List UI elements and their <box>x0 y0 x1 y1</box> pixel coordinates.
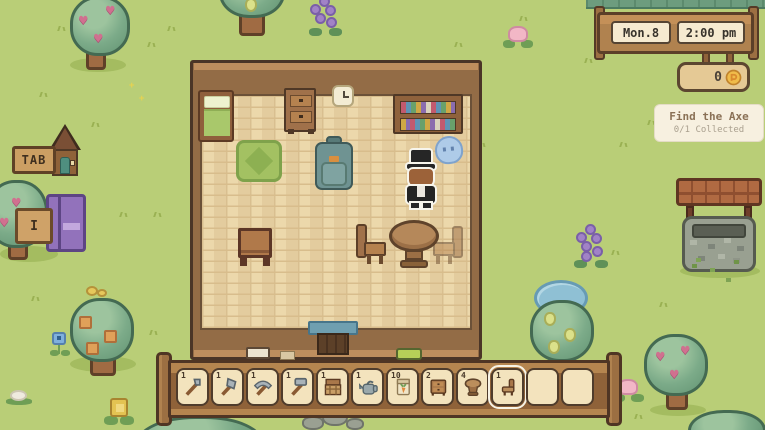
rug <box>236 140 282 182</box>
hotbar-slot-9-table[interactable]: 4 <box>456 368 489 406</box>
grass-tuft <box>585 58 593 64</box>
inventory-crate: I <box>15 208 53 244</box>
item-count: 1 <box>286 371 291 380</box>
item-count: 1 <box>251 371 256 380</box>
sparkle: + <box>129 82 134 91</box>
house-roof-edge <box>194 63 478 70</box>
grass-tuft <box>520 16 528 22</box>
coin-panel: 0 <box>677 62 750 92</box>
pillow <box>204 96 230 108</box>
heart-fruit <box>79 14 87 28</box>
white-flower <box>6 390 32 406</box>
hotbar-slot-2-axe[interactable]: 1 <box>211 368 244 406</box>
item-count: 10 <box>391 371 401 380</box>
item-count: 1 <box>496 371 501 380</box>
player-character <box>401 148 439 210</box>
grass-tuft <box>58 26 66 32</box>
heart-tree <box>644 334 708 396</box>
quest-title: Find the Axe <box>655 110 763 123</box>
blue-flower <box>50 332 70 358</box>
hotbar-slot-1-hoe[interactable]: 1 <box>176 368 209 406</box>
hotbar-slot-3-pickaxe[interactable]: 1 <box>246 368 279 406</box>
door <box>317 333 349 355</box>
date-label: Mon.8 <box>623 26 659 40</box>
orange-tree <box>70 298 134 362</box>
item-count: 1 <box>321 371 326 380</box>
yellow-flower <box>97 289 107 297</box>
coin-amount: 0 <box>714 70 722 85</box>
hotbar-slot-12-empty[interactable] <box>561 368 594 406</box>
grass-tuft <box>612 250 620 256</box>
grass-tuft <box>92 122 100 128</box>
hotbar-slots: 11111110241 <box>176 368 604 408</box>
hotbar-slot-8-dresser[interactable]: 2 <box>421 368 454 406</box>
time-label: 2:00 pm <box>686 26 737 40</box>
round-table <box>389 218 439 268</box>
fruit <box>104 330 117 343</box>
fruit <box>544 312 556 326</box>
grass-tuft <box>148 42 156 48</box>
dresser <box>284 88 316 132</box>
head <box>409 169 433 186</box>
item-count: 4 <box>461 371 466 380</box>
backpack <box>315 136 353 192</box>
blanket <box>204 109 230 136</box>
yellow-box-flower <box>104 398 134 428</box>
heart-fruit <box>0 216 8 230</box>
rock <box>302 416 324 430</box>
grass-tuft <box>455 42 463 48</box>
foot <box>411 203 419 208</box>
rock <box>346 418 364 430</box>
foot <box>423 203 431 208</box>
hedge <box>586 0 765 9</box>
hotbar-slot-10-chair[interactable]: 1 <box>491 368 524 406</box>
hotbar-slot-5-crate[interactable]: 1 <box>316 368 349 406</box>
chair-placement-preview <box>433 226 463 264</box>
chair <box>356 224 386 264</box>
tab-sign: TAB <box>12 146 56 174</box>
hotbar-slot-6-watering-can[interactable]: 1 <box>351 368 384 406</box>
pink-flower <box>503 24 533 52</box>
bed <box>198 90 234 142</box>
item-count: 1 <box>356 371 361 380</box>
top-hat <box>411 150 431 165</box>
inventory-key-label: I <box>30 219 38 234</box>
grape-bush <box>574 224 610 270</box>
grass-tuft <box>635 414 643 420</box>
heart-fruit <box>106 4 114 18</box>
date-panel: Mon.8 <box>611 21 671 44</box>
game-viewport: + + TAB <box>0 0 765 430</box>
fruit <box>548 340 560 354</box>
hotbar-slot-11-empty[interactable] <box>526 368 559 406</box>
grass-tuft <box>660 302 668 308</box>
heart-fruit <box>94 32 102 46</box>
fruit <box>86 342 99 355</box>
quest-progress: 0/1 Collected <box>655 125 763 135</box>
hotbar-slot-7-seed-packet[interactable]: 10 <box>386 368 419 406</box>
grass-tuft <box>40 92 48 98</box>
grass-tuft <box>32 296 40 302</box>
hotbar-slot-4-hammer[interactable]: 1 <box>281 368 314 406</box>
bookshelf <box>393 94 463 134</box>
coin-icon <box>725 69 742 86</box>
planter <box>396 348 422 360</box>
heart-fruit <box>681 344 689 358</box>
item-count: 1 <box>216 371 221 380</box>
wall-clock <box>332 85 354 107</box>
grass-tuft <box>154 212 162 218</box>
wall-box <box>280 351 295 360</box>
heart-fruit <box>670 368 678 382</box>
shirt <box>417 186 425 197</box>
fruit <box>564 328 576 342</box>
time-panel: 2:00 pm <box>677 21 745 44</box>
item-count: 2 <box>426 371 431 380</box>
grass-tuft <box>168 26 176 32</box>
grass-tuft <box>120 212 128 218</box>
tab-sign-label: TAB <box>22 153 47 167</box>
grape-bush <box>309 0 343 38</box>
well-roof <box>676 178 762 206</box>
pear-tree <box>530 300 594 362</box>
grass-tuft <box>620 142 628 148</box>
side-table <box>238 228 272 266</box>
item-count: 1 <box>181 371 186 380</box>
fruit <box>79 316 92 329</box>
well <box>676 178 762 276</box>
wall-sign <box>246 347 270 359</box>
quest-card: Find the Axe 0/1 Collected <box>654 104 764 142</box>
grass-tuft <box>150 330 158 336</box>
heart-fruit <box>656 350 664 364</box>
sparkle: + <box>139 95 144 104</box>
